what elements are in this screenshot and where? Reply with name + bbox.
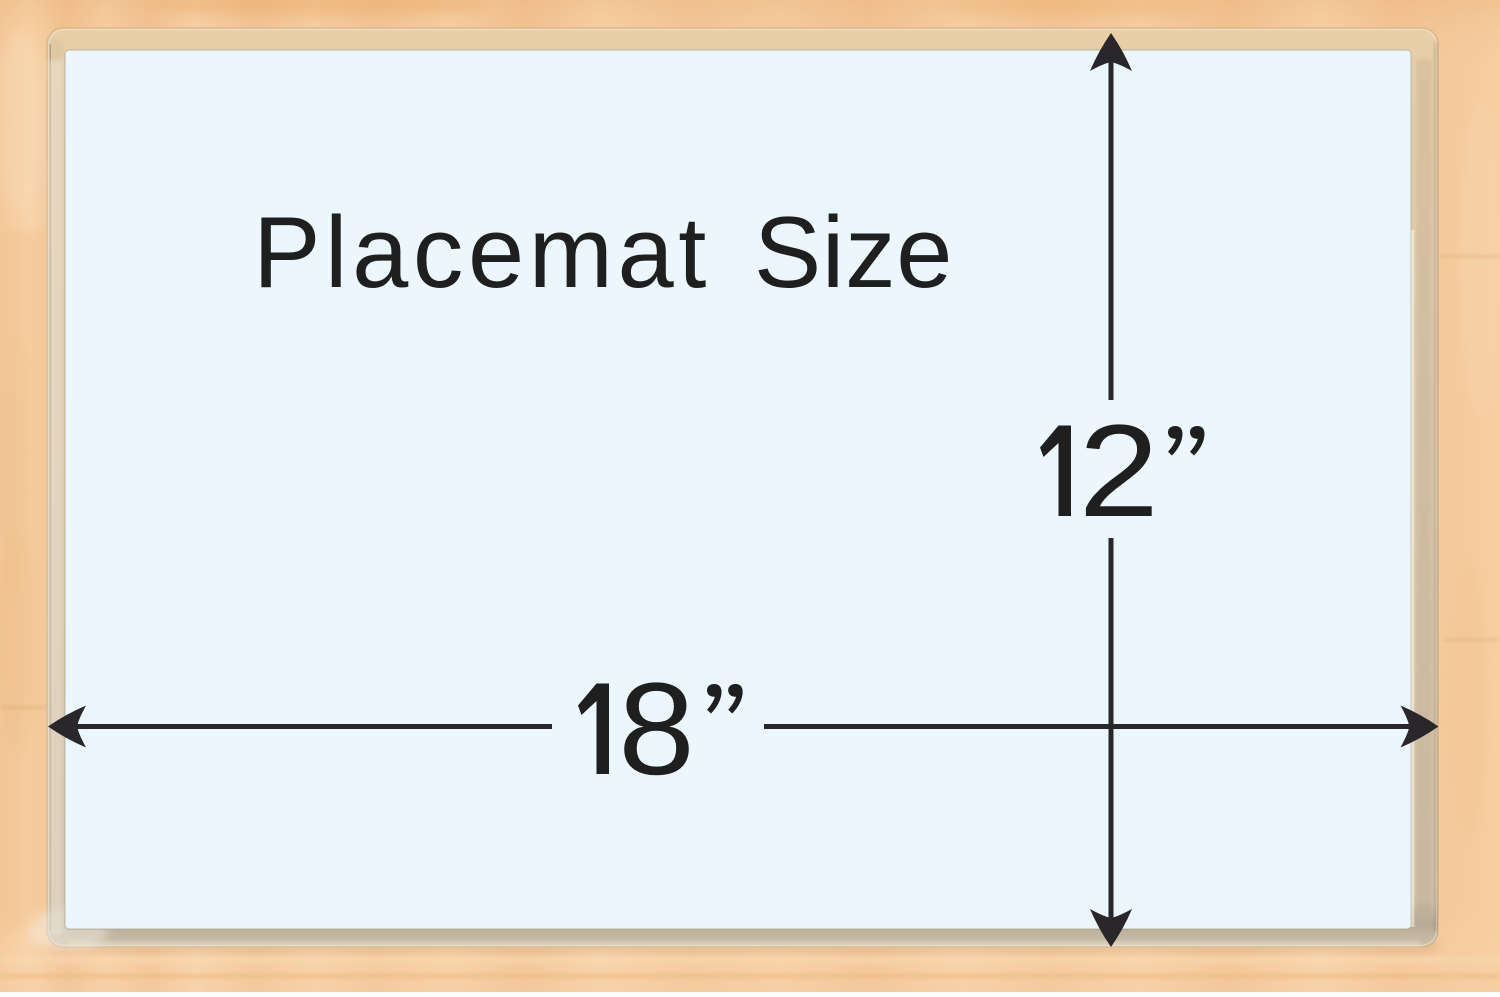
svg-text:Size: Size (754, 197, 953, 309)
svg-text:Placemat: Placemat (253, 197, 711, 309)
svg-text:8: 8 (618, 656, 695, 802)
svg-text:2: 2 (1079, 398, 1159, 545)
